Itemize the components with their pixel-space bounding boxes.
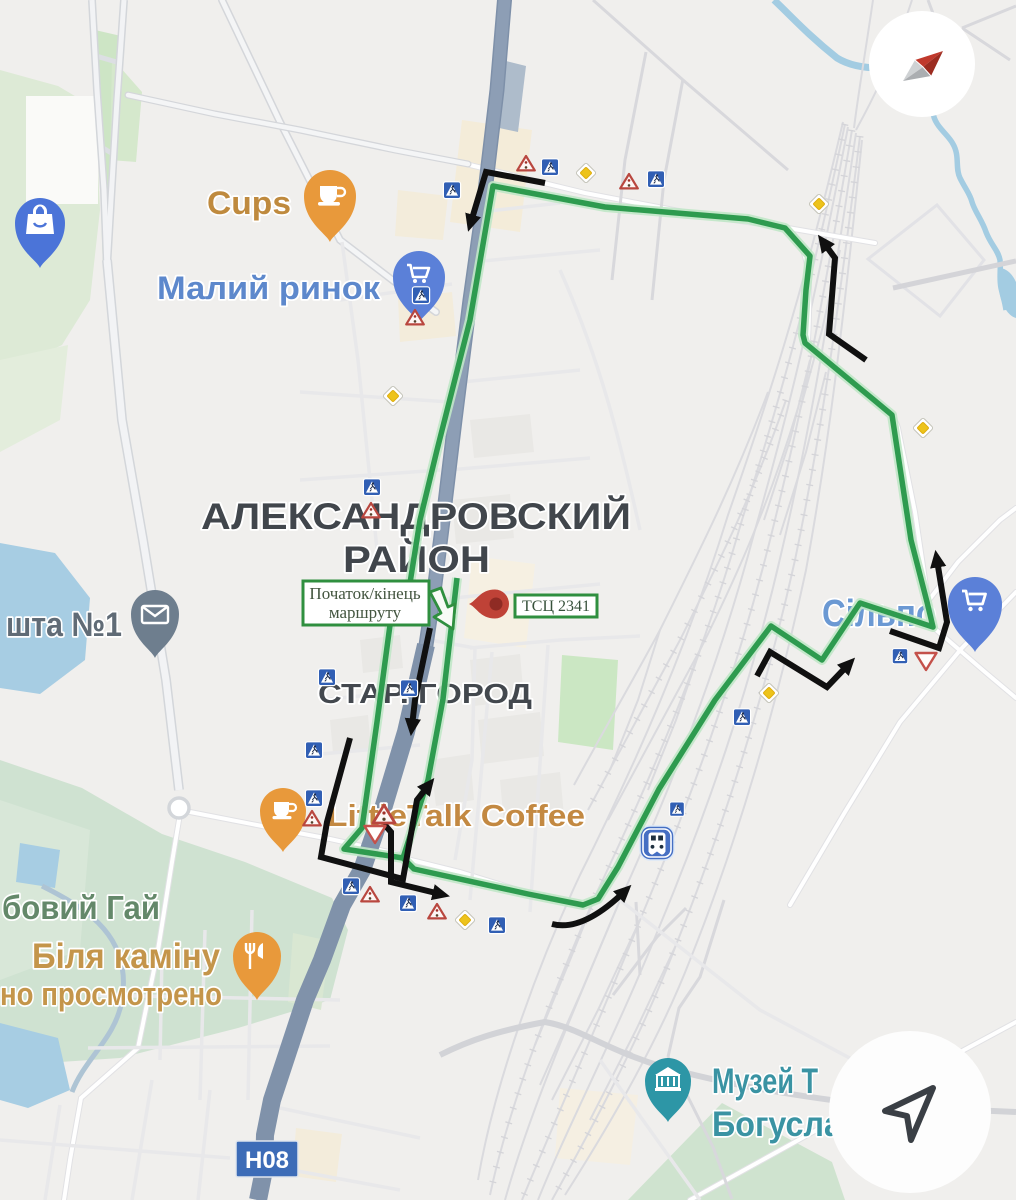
svg-text:Малий ринок: Малий ринок [157, 270, 381, 306]
svg-text:бовий Гай: бовий Гай [2, 889, 160, 926]
svg-text:Н08: Н08 [245, 1147, 289, 1174]
svg-text:Богусла: Богусла [712, 1105, 842, 1144]
svg-text:но просмотрено: но просмотрено [0, 976, 222, 1012]
svg-text:Біля каміну: Біля каміну [32, 937, 220, 976]
svg-text:СТАР. ГОРОД: СТАР. ГОРОД [318, 678, 532, 709]
svg-text:Cups: Cups [207, 185, 291, 221]
svg-text:Початок/кінець: Початок/кінець [309, 584, 420, 603]
svg-text:ТСЦ 2341: ТСЦ 2341 [522, 598, 590, 615]
svg-text:маршруту: маршруту [329, 603, 402, 622]
svg-text:Музей Т: Музей Т [712, 1062, 818, 1101]
svg-text:шта №1: шта №1 [6, 606, 122, 644]
